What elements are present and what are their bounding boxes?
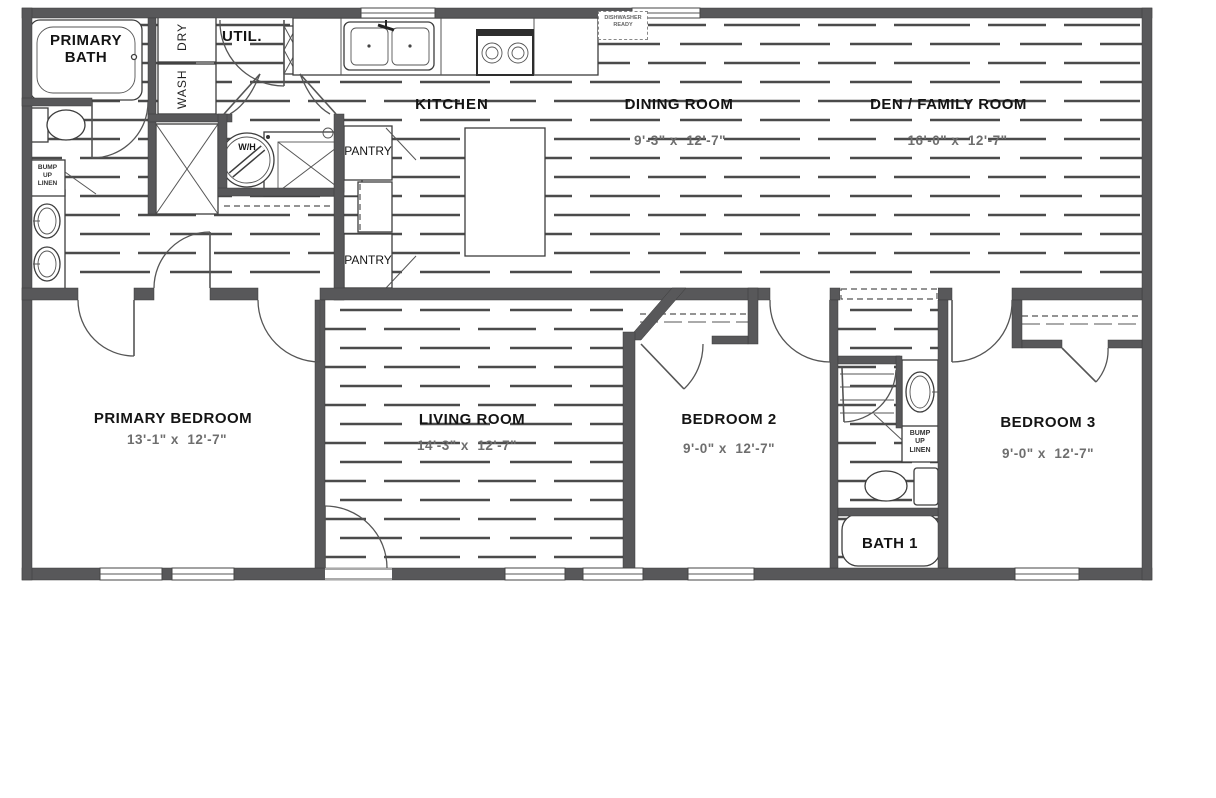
bath1-toilet-tank — [914, 468, 938, 505]
room-label-primary-bath: PRIMARY BATH — [30, 32, 142, 67]
room-dim-den: 16'-0" x 12'-7" — [860, 133, 1055, 148]
range — [477, 30, 533, 75]
window-bedroom2 — [688, 568, 754, 580]
kitchen-island — [465, 128, 545, 256]
cased-opening-hall — [840, 288, 938, 300]
floorplan-drawing — [0, 0, 1216, 798]
toilet-tank — [31, 108, 48, 142]
door-bedroom3 — [952, 300, 1012, 362]
room-label-bedroom3: BEDROOM 3 — [978, 414, 1118, 431]
hall-cabinet — [358, 182, 392, 232]
front-door-opening — [325, 568, 392, 580]
room-label-den: DEN / FAMILY ROOM — [851, 96, 1046, 113]
room-label-bedroom2: BEDROOM 2 — [659, 411, 799, 428]
window-living-2 — [583, 568, 643, 580]
bath1-toilet-bowl — [865, 471, 907, 501]
water-heater-label: W/H — [231, 142, 263, 152]
floor-plan: PRIMARY BATH UTIL. DRY WASH W/H PANTRY P… — [0, 0, 1216, 798]
toilet-bowl — [47, 110, 85, 140]
room-label-bath1: BATH 1 — [850, 535, 930, 552]
door-primary-bedroom — [78, 300, 134, 356]
kitchen-counter — [293, 18, 598, 75]
linen-label-left: BUMP UP LINEN — [30, 164, 65, 187]
room-label-primary-bedroom: PRIMARY BEDROOM — [68, 410, 278, 427]
dryer-label: DRY — [175, 14, 199, 60]
door-living — [258, 300, 320, 362]
door-bedroom2-closet — [641, 344, 703, 389]
room-label-dining: DINING ROOM — [604, 96, 754, 113]
window-bedroom3 — [1015, 568, 1079, 580]
door-bedroom3-closet — [1062, 348, 1108, 382]
room-label-util: UTIL. — [212, 28, 272, 45]
room-dim-primary-bedroom: 13'-1" x 12'-7" — [72, 432, 282, 447]
room-dim-dining: 9'-3" x 12'-7" — [605, 133, 755, 148]
room-dim-living: 14'-3" x 12'-7" — [397, 438, 537, 453]
pantry-1-label: PANTRY — [342, 145, 394, 159]
room-label-kitchen: KITCHEN — [397, 96, 507, 113]
pantry-2-label: PANTRY — [342, 254, 394, 268]
window-primary-2 — [172, 568, 234, 580]
washer-label: WASH — [175, 66, 199, 112]
room-dim-bedroom2: 9'-0" x 12'-7" — [659, 441, 799, 456]
room-label-living: LIVING ROOM — [402, 411, 542, 428]
room-dim-bedroom3: 9'-0" x 12'-7" — [978, 446, 1118, 461]
door-bedroom2 — [770, 300, 830, 362]
window-living-1 — [505, 568, 565, 580]
window-primary-1 — [100, 568, 162, 580]
linen-label-bath: BUMP UP LINEN — [902, 430, 938, 455]
dishwasher-ready-note: DISHWASHER READY — [598, 11, 648, 40]
window-kitchen — [361, 8, 435, 18]
